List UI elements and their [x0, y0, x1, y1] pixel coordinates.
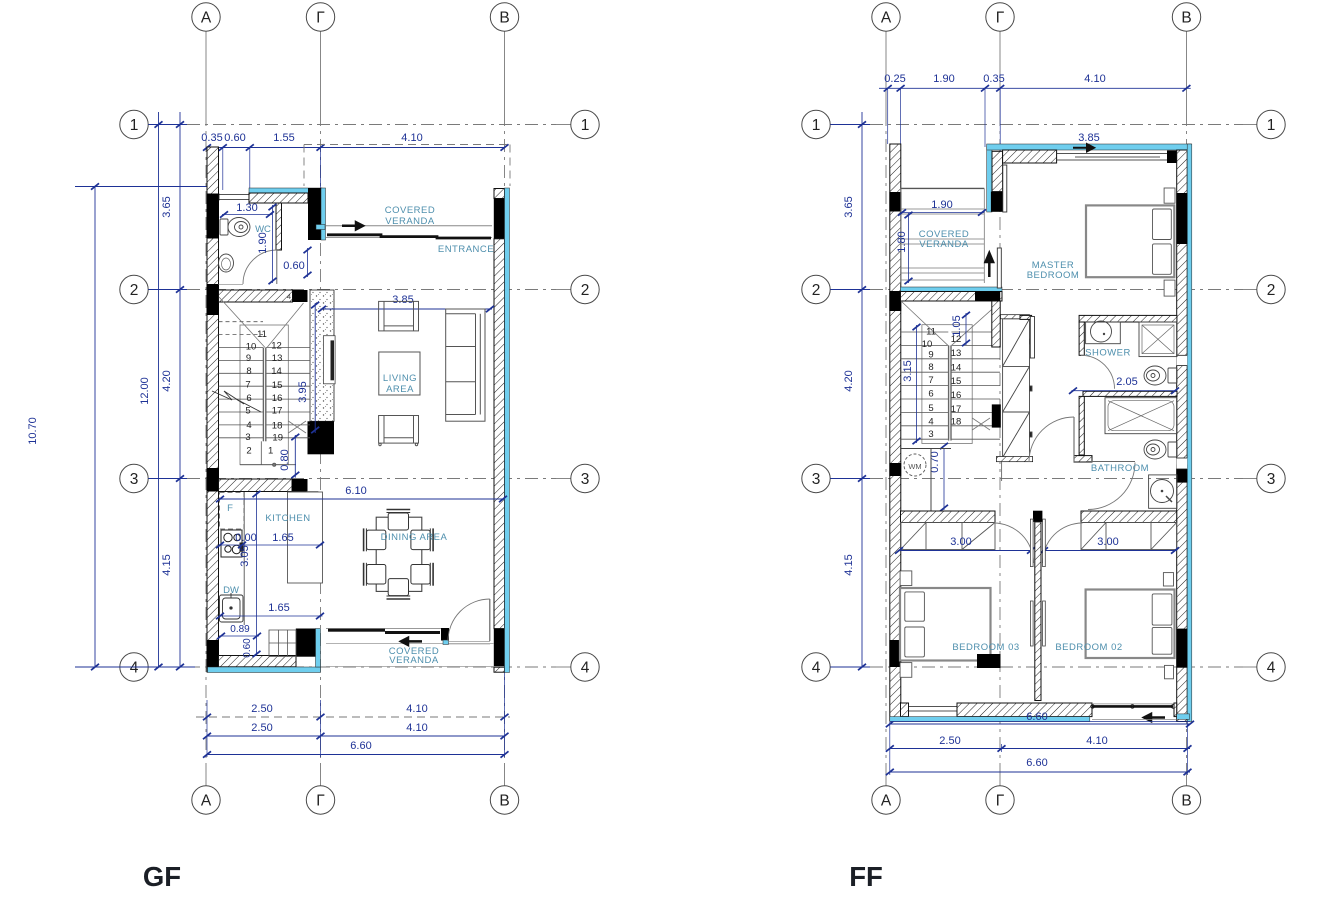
svg-text:8: 8: [246, 366, 251, 377]
svg-text:3.65: 3.65: [843, 196, 855, 217]
svg-text:B: B: [1181, 10, 1191, 27]
svg-text:5: 5: [245, 406, 250, 417]
svg-text:10: 10: [246, 342, 257, 353]
svg-text:16: 16: [272, 393, 283, 404]
svg-text:18: 18: [951, 417, 962, 428]
svg-text:1.90: 1.90: [933, 73, 954, 85]
svg-text:4.20: 4.20: [161, 370, 173, 391]
svg-text:0.60: 0.60: [283, 260, 304, 272]
svg-text:WM: WM: [908, 462, 921, 471]
svg-text:10: 10: [922, 339, 933, 350]
svg-text:11: 11: [257, 329, 267, 340]
svg-text:7: 7: [245, 379, 250, 390]
svg-text:3.85: 3.85: [392, 294, 413, 306]
svg-text:3: 3: [812, 471, 821, 488]
svg-text:A: A: [201, 10, 212, 27]
svg-text:4: 4: [581, 660, 590, 677]
svg-text:1.55: 1.55: [273, 132, 294, 144]
svg-text:6.10: 6.10: [345, 485, 366, 497]
svg-text:1.90: 1.90: [257, 232, 269, 253]
svg-text:A: A: [881, 10, 892, 27]
svg-text:SHOWER: SHOWER: [1085, 348, 1131, 359]
svg-text:17: 17: [272, 406, 283, 417]
svg-text:0.25: 0.25: [884, 73, 905, 85]
svg-text:BEDROOM: BEDROOM: [1027, 270, 1080, 281]
svg-text:3: 3: [245, 432, 250, 443]
svg-text:Γ: Γ: [316, 10, 325, 27]
svg-text:6: 6: [928, 389, 933, 400]
svg-text:14: 14: [951, 363, 962, 374]
svg-text:14: 14: [271, 366, 282, 377]
svg-text:8: 8: [928, 362, 933, 373]
svg-text:3.00: 3.00: [950, 536, 971, 548]
svg-text:F: F: [227, 503, 233, 514]
svg-text:1.65: 1.65: [268, 602, 289, 614]
svg-text:3: 3: [581, 471, 590, 488]
svg-text:1: 1: [268, 446, 273, 457]
svg-text:1: 1: [1267, 117, 1276, 134]
svg-text:2.05: 2.05: [1116, 376, 1137, 388]
svg-text:4.10: 4.10: [1084, 73, 1105, 85]
svg-text:5: 5: [928, 403, 933, 414]
svg-text:0.89: 0.89: [230, 624, 250, 635]
svg-text:0.80: 0.80: [279, 449, 291, 470]
svg-text:0.35: 0.35: [983, 73, 1004, 85]
svg-text:10.70: 10.70: [27, 417, 39, 445]
svg-text:GF: GF: [143, 861, 181, 892]
svg-text:4: 4: [928, 417, 933, 428]
svg-text:3: 3: [130, 471, 139, 488]
svg-text:4.15: 4.15: [161, 554, 173, 575]
svg-text:ENTRANCE: ENTRANCE: [438, 244, 494, 255]
svg-text:2: 2: [812, 282, 821, 299]
svg-text:3: 3: [928, 429, 933, 440]
svg-text:3.85: 3.85: [1078, 132, 1099, 144]
svg-text:6.60: 6.60: [1026, 757, 1047, 769]
svg-text:16: 16: [951, 390, 962, 401]
svg-text:4.10: 4.10: [401, 132, 422, 144]
svg-text:Γ: Γ: [996, 10, 1005, 27]
svg-text:3: 3: [1267, 471, 1276, 488]
svg-text:COVERED: COVERED: [385, 205, 435, 216]
svg-text:4.10: 4.10: [406, 703, 427, 715]
svg-text:1: 1: [130, 117, 139, 134]
svg-text:B: B: [499, 10, 509, 27]
svg-text:4.10: 4.10: [1086, 735, 1107, 747]
svg-text:11: 11: [926, 327, 936, 338]
svg-text:1: 1: [581, 117, 590, 134]
svg-text:BEDROOM 03: BEDROOM 03: [952, 642, 1019, 653]
svg-text:9: 9: [928, 350, 933, 361]
svg-text:2.50: 2.50: [939, 735, 960, 747]
svg-text:3.00: 3.00: [1097, 536, 1118, 548]
svg-text:4.10: 4.10: [406, 722, 427, 734]
svg-text:DINING AREA: DINING AREA: [381, 532, 448, 543]
svg-text:1.90: 1.90: [931, 199, 952, 211]
svg-text:7: 7: [928, 375, 933, 386]
svg-text:3.65: 3.65: [161, 196, 173, 217]
svg-text:Γ: Γ: [316, 793, 325, 810]
svg-text:1.80: 1.80: [896, 231, 908, 252]
svg-text:A: A: [201, 793, 212, 810]
svg-text:B: B: [499, 793, 509, 810]
svg-text:4.15: 4.15: [843, 554, 855, 575]
svg-text:Γ: Γ: [996, 793, 1005, 810]
svg-text:VERANDA: VERANDA: [919, 239, 969, 250]
svg-text:2: 2: [581, 282, 590, 299]
svg-text:6: 6: [246, 393, 251, 404]
svg-text:2: 2: [1267, 282, 1276, 299]
svg-text:3.95: 3.95: [297, 381, 309, 402]
svg-text:BATHROOM: BATHROOM: [1091, 463, 1149, 474]
svg-text:4: 4: [130, 660, 139, 677]
svg-text:1.30: 1.30: [236, 202, 257, 214]
svg-text:A: A: [881, 793, 892, 810]
svg-text:BEDROOM 02: BEDROOM 02: [1055, 642, 1122, 653]
svg-text:15: 15: [272, 380, 283, 391]
svg-text:17: 17: [951, 404, 962, 415]
svg-text:2.50: 2.50: [251, 703, 272, 715]
svg-text:15: 15: [951, 376, 962, 387]
svg-text:3.15: 3.15: [902, 360, 914, 381]
svg-text:1.65: 1.65: [272, 532, 293, 544]
svg-text:FF: FF: [849, 861, 883, 892]
svg-text:DW: DW: [223, 585, 239, 596]
svg-text:3.05: 3.05: [239, 545, 251, 566]
svg-text:13: 13: [272, 353, 283, 364]
svg-text:1.05: 1.05: [951, 315, 963, 336]
svg-text:4: 4: [287, 292, 291, 301]
svg-text:KITCHEN: KITCHEN: [265, 513, 310, 524]
svg-text:VERANDA: VERANDA: [385, 216, 435, 227]
svg-text:0.35: 0.35: [201, 132, 222, 144]
svg-text:0.60: 0.60: [224, 132, 245, 144]
svg-text:2: 2: [246, 446, 251, 457]
svg-text:LIVING: LIVING: [383, 373, 417, 384]
svg-text:VERANDA: VERANDA: [389, 655, 439, 666]
svg-text:4: 4: [246, 420, 251, 431]
svg-text:18: 18: [272, 420, 283, 431]
svg-text:19: 19: [272, 433, 283, 444]
svg-text:4: 4: [1267, 660, 1276, 677]
svg-text:AREA: AREA: [386, 384, 414, 395]
svg-text:1: 1: [812, 117, 821, 134]
svg-text:B: B: [1181, 793, 1191, 810]
svg-text:9: 9: [246, 353, 251, 364]
svg-text:6.60: 6.60: [350, 740, 371, 752]
svg-text:4: 4: [812, 660, 821, 677]
svg-text:4.20: 4.20: [843, 370, 855, 391]
svg-text:13: 13: [951, 348, 962, 359]
svg-text:2: 2: [130, 282, 139, 299]
svg-text:0.60: 0.60: [242, 638, 253, 658]
svg-text:12.00: 12.00: [139, 377, 151, 405]
svg-text:12: 12: [271, 341, 282, 352]
svg-text:2.50: 2.50: [251, 722, 272, 734]
